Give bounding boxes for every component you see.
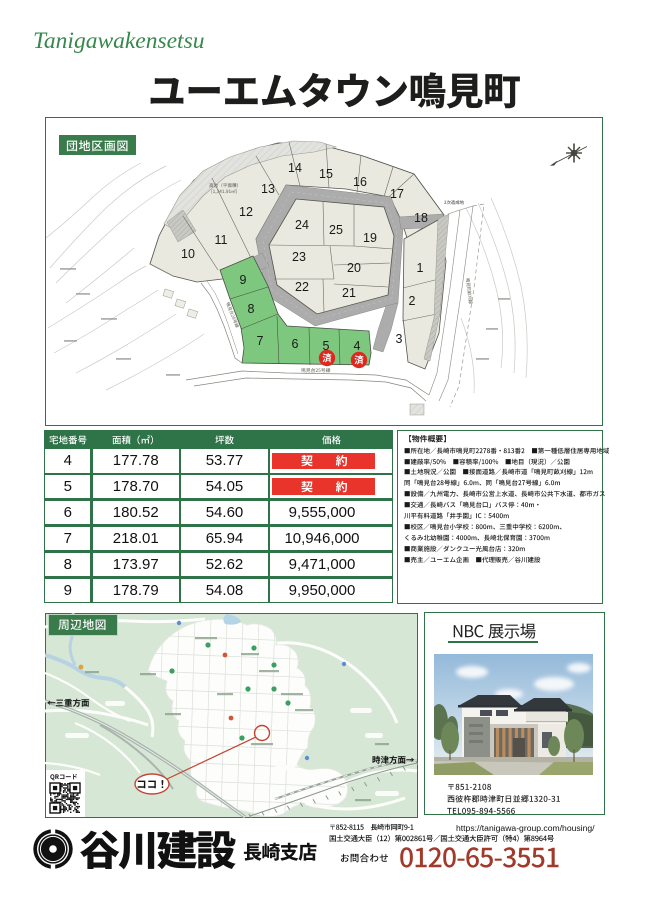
svg-text:15: 15 <box>319 167 333 181</box>
svg-text:6: 6 <box>292 337 299 351</box>
svg-text:9: 9 <box>240 273 247 287</box>
svg-text:13: 13 <box>261 182 275 196</box>
svg-text:12: 12 <box>239 205 253 219</box>
svg-text:17: 17 <box>390 187 404 201</box>
svg-text:20: 20 <box>347 261 361 275</box>
svg-text:3: 3 <box>396 332 403 346</box>
svg-text:22: 22 <box>295 280 309 294</box>
svg-text:16: 16 <box>353 175 367 189</box>
svg-text:19: 19 <box>363 231 377 245</box>
svg-text:10: 10 <box>181 247 195 261</box>
svg-text:21: 21 <box>342 286 356 300</box>
svg-text:7: 7 <box>257 334 264 348</box>
svg-text:2: 2 <box>409 294 416 308</box>
svg-text:8: 8 <box>248 302 255 316</box>
svg-text:23: 23 <box>292 250 306 264</box>
svg-text:14: 14 <box>288 161 302 175</box>
svg-text:24: 24 <box>295 218 309 232</box>
svg-text:25: 25 <box>329 223 343 237</box>
svg-text:18: 18 <box>414 211 428 225</box>
svg-text:11: 11 <box>215 233 228 247</box>
svg-text:4: 4 <box>354 339 361 353</box>
svg-text:1: 1 <box>417 261 424 275</box>
